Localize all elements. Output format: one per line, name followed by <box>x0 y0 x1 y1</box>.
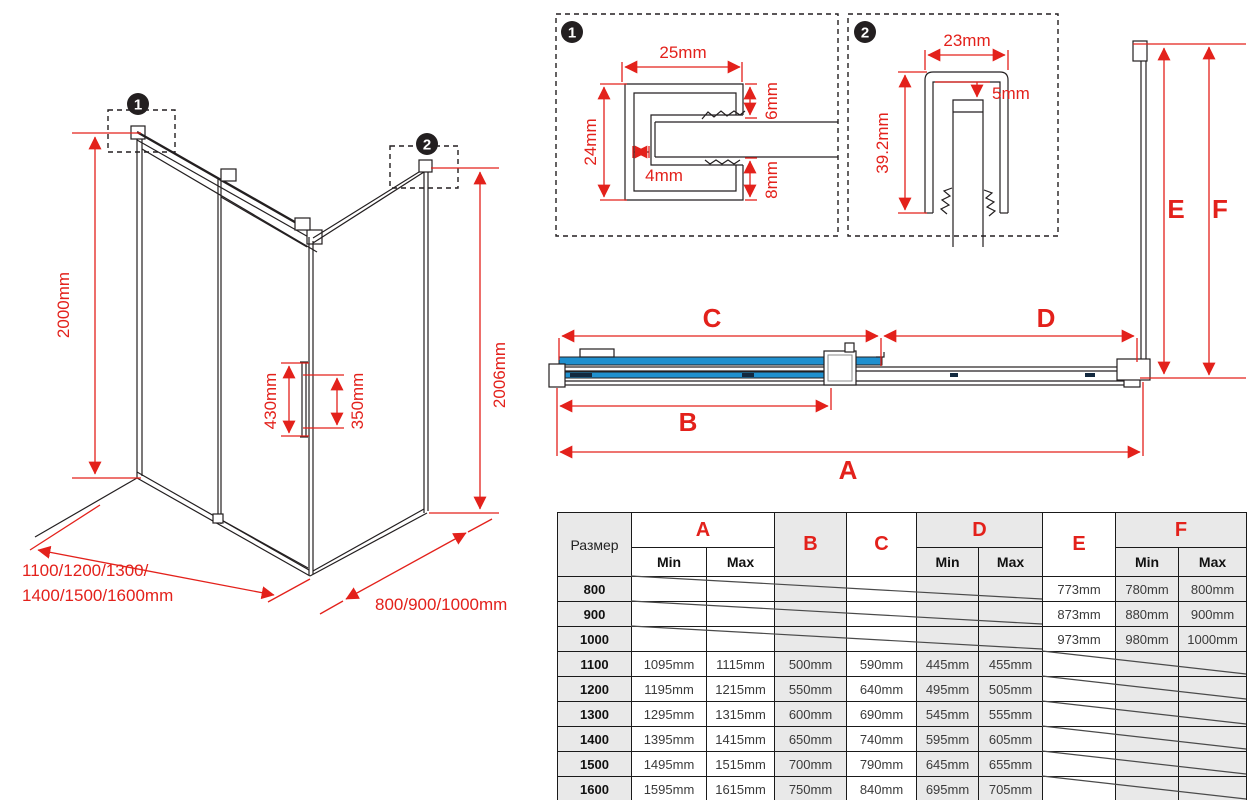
detail-2-height-label: 39.2mm <box>873 112 892 173</box>
table-header-letters: Размер A B C D E F <box>558 513 1247 548</box>
isometric-view: 1 2 2000mm 2006mm 430mm 350mm <box>22 93 509 614</box>
value-cell: 1315mm <box>707 702 775 727</box>
value-cell: 740mm <box>847 727 917 752</box>
value-cell <box>1116 677 1179 702</box>
dim-handle-height-label: 430mm <box>261 373 280 430</box>
value-cell: 1115mm <box>707 652 775 677</box>
value-cell <box>1116 777 1179 800</box>
size-table-body: 800773mm780mm800mm900873mm880mm900mm1000… <box>558 577 1247 800</box>
a-max-header: Max <box>707 548 775 577</box>
value-cell <box>1043 652 1116 677</box>
value-cell <box>1116 652 1179 677</box>
value-cell <box>847 577 917 602</box>
detail-2-badge-label: 2 <box>861 25 869 42</box>
size-label-cell: 1300 <box>558 702 632 727</box>
value-cell: 545mm <box>917 702 979 727</box>
detail-1-step-label: 4mm <box>645 166 683 185</box>
value-cell <box>1179 752 1247 777</box>
technical-drawing-page: 1 2 2000mm 2006mm 430mm 350mm <box>0 0 1250 800</box>
size-label-cell: 1600 <box>558 777 632 800</box>
value-cell: 590mm <box>847 652 917 677</box>
table-row: 16001595mm1615mm750mm840mm695mm705mm <box>558 777 1247 800</box>
a-min-header: Min <box>632 548 707 577</box>
value-cell: 550mm <box>775 677 847 702</box>
value-cell <box>1179 677 1247 702</box>
value-cell: 555mm <box>979 702 1043 727</box>
value-cell: 873mm <box>1043 602 1116 627</box>
size-label-cell: 1200 <box>558 677 632 702</box>
value-cell: 1415mm <box>707 727 775 752</box>
value-cell: 1215mm <box>707 677 775 702</box>
value-cell <box>707 577 775 602</box>
col-header-e: E <box>1043 513 1116 577</box>
value-cell: 980mm <box>1116 627 1179 652</box>
col-header-d: D <box>917 513 1043 548</box>
dim-letter-f: F <box>1212 194 1228 224</box>
value-cell <box>775 577 847 602</box>
value-cell <box>979 577 1043 602</box>
value-cell <box>707 627 775 652</box>
value-cell: 695mm <box>917 777 979 800</box>
detail-1-gap-top-label: 6mm <box>762 82 781 120</box>
value-cell: 495mm <box>917 677 979 702</box>
table-row: 1000973mm980mm1000mm <box>558 627 1247 652</box>
badge-1-label: 1 <box>134 97 142 114</box>
col-header-size: Размер <box>558 513 632 577</box>
value-cell <box>917 577 979 602</box>
value-cell <box>1179 652 1247 677</box>
size-label-cell: 800 <box>558 577 632 602</box>
detail-1-width-label: 25mm <box>659 43 706 62</box>
value-cell: 790mm <box>847 752 917 777</box>
value-cell: 700mm <box>775 752 847 777</box>
value-cell: 1095mm <box>632 652 707 677</box>
side-width-label: 800/900/1000mm <box>375 595 507 614</box>
table-row: 11001095mm1115mm500mm590mm445mm455mm <box>558 652 1247 677</box>
dim-letter-e: E <box>1167 194 1184 224</box>
table-row: 13001295mm1315mm600mm690mm545mm555mm <box>558 702 1247 727</box>
value-cell: 505mm <box>979 677 1043 702</box>
plan-dimensions: C D B A E F <box>557 44 1246 485</box>
value-cell: 1395mm <box>632 727 707 752</box>
value-cell: 1000mm <box>1179 627 1247 652</box>
value-cell: 840mm <box>847 777 917 800</box>
value-cell: 500mm <box>775 652 847 677</box>
value-cell: 595mm <box>917 727 979 752</box>
table-row: 14001395mm1415mm650mm740mm595mm605mm <box>558 727 1247 752</box>
detail-1-gap-bottom-label: 8mm <box>762 161 781 199</box>
value-cell: 605mm <box>979 727 1043 752</box>
value-cell: 1195mm <box>632 677 707 702</box>
badge-2-label: 2 <box>423 137 431 154</box>
value-cell: 640mm <box>847 677 917 702</box>
value-cell: 800mm <box>1179 577 1247 602</box>
value-cell: 973mm <box>1043 627 1116 652</box>
col-header-f: F <box>1116 513 1247 548</box>
value-cell: 600mm <box>775 702 847 727</box>
value-cell: 880mm <box>1116 602 1179 627</box>
detail-1-height-label: 24mm <box>581 118 600 165</box>
table-row: 900873mm880mm900mm <box>558 602 1247 627</box>
value-cell <box>1116 702 1179 727</box>
value-cell <box>775 602 847 627</box>
plan-view: C D B A E F <box>549 41 1246 485</box>
table-row: 12001195mm1215mm550mm640mm495mm505mm <box>558 677 1247 702</box>
value-cell <box>1043 702 1116 727</box>
value-cell: 1615mm <box>707 777 775 800</box>
dim-letter-d: D <box>1037 303 1056 333</box>
value-cell <box>1043 677 1116 702</box>
dim-height-right-label: 2006mm <box>490 342 509 408</box>
value-cell: 705mm <box>979 777 1043 800</box>
value-cell: 1495mm <box>632 752 707 777</box>
value-cell <box>847 627 917 652</box>
detail-2-dimensions: 23mm 5mm 39.2mm <box>873 31 1030 213</box>
value-cell: 780mm <box>1116 577 1179 602</box>
value-cell <box>1043 752 1116 777</box>
value-cell <box>775 627 847 652</box>
value-cell <box>1179 702 1247 727</box>
col-header-b: B <box>775 513 847 577</box>
value-cell <box>632 577 707 602</box>
dim-letter-b: B <box>679 407 698 437</box>
d-min-header: Min <box>917 548 979 577</box>
size-label-cell: 1500 <box>558 752 632 777</box>
value-cell: 900mm <box>1179 602 1247 627</box>
value-cell <box>847 602 917 627</box>
value-cell: 750mm <box>775 777 847 800</box>
f-min-header: Min <box>1116 548 1179 577</box>
table-row: 800773mm780mm800mm <box>558 577 1247 602</box>
col-header-a: A <box>632 513 775 548</box>
size-table-container: Размер A B C D E F Min Max Min Max Min M… <box>557 512 1246 800</box>
value-cell <box>1179 777 1247 800</box>
detail-1-badge-label: 1 <box>568 25 576 42</box>
value-cell <box>917 627 979 652</box>
size-label-cell: 1100 <box>558 652 632 677</box>
d-max-header: Max <box>979 548 1043 577</box>
value-cell: 1295mm <box>632 702 707 727</box>
value-cell: 1595mm <box>632 777 707 800</box>
value-cell <box>1043 777 1116 800</box>
value-cell: 1515mm <box>707 752 775 777</box>
detail-1: 1 25mm 24mm 6mm 8 <box>556 14 838 236</box>
front-width-label-line2: 1400/1500/1600mm <box>22 586 173 605</box>
size-table: Размер A B C D E F Min Max Min Max Min M… <box>557 512 1247 800</box>
value-cell <box>1043 727 1116 752</box>
value-cell: 773mm <box>1043 577 1116 602</box>
value-cell: 645mm <box>917 752 979 777</box>
value-cell <box>917 602 979 627</box>
size-label-cell: 1400 <box>558 727 632 752</box>
value-cell: 445mm <box>917 652 979 677</box>
dim-letter-c: C <box>703 303 722 333</box>
detail-2: 2 23mm 5mm 39.2mm <box>848 14 1058 247</box>
detail-2-width-label: 23mm <box>943 31 990 50</box>
value-cell <box>979 602 1043 627</box>
value-cell: 650mm <box>775 727 847 752</box>
dim-handle-span-label: 350mm <box>348 373 367 430</box>
value-cell <box>1179 727 1247 752</box>
col-header-c: C <box>847 513 917 577</box>
value-cell <box>632 602 707 627</box>
f-max-header: Max <box>1179 548 1247 577</box>
value-cell <box>632 627 707 652</box>
dim-letter-a: A <box>839 455 858 485</box>
table-row: 15001495mm1515mm700mm790mm645mm655mm <box>558 752 1247 777</box>
value-cell <box>1116 727 1179 752</box>
size-label-cell: 1000 <box>558 627 632 652</box>
value-cell <box>1116 752 1179 777</box>
front-width-label-line1: 1100/1200/1300/ <box>22 561 149 580</box>
value-cell <box>979 627 1043 652</box>
door-handle <box>300 362 308 437</box>
value-cell: 690mm <box>847 702 917 727</box>
detail-2-inset-label: 5mm <box>992 84 1030 103</box>
dim-height-left-label: 2000mm <box>54 272 73 338</box>
value-cell: 655mm <box>979 752 1043 777</box>
value-cell <box>707 602 775 627</box>
value-cell: 455mm <box>979 652 1043 677</box>
size-label-cell: 900 <box>558 602 632 627</box>
